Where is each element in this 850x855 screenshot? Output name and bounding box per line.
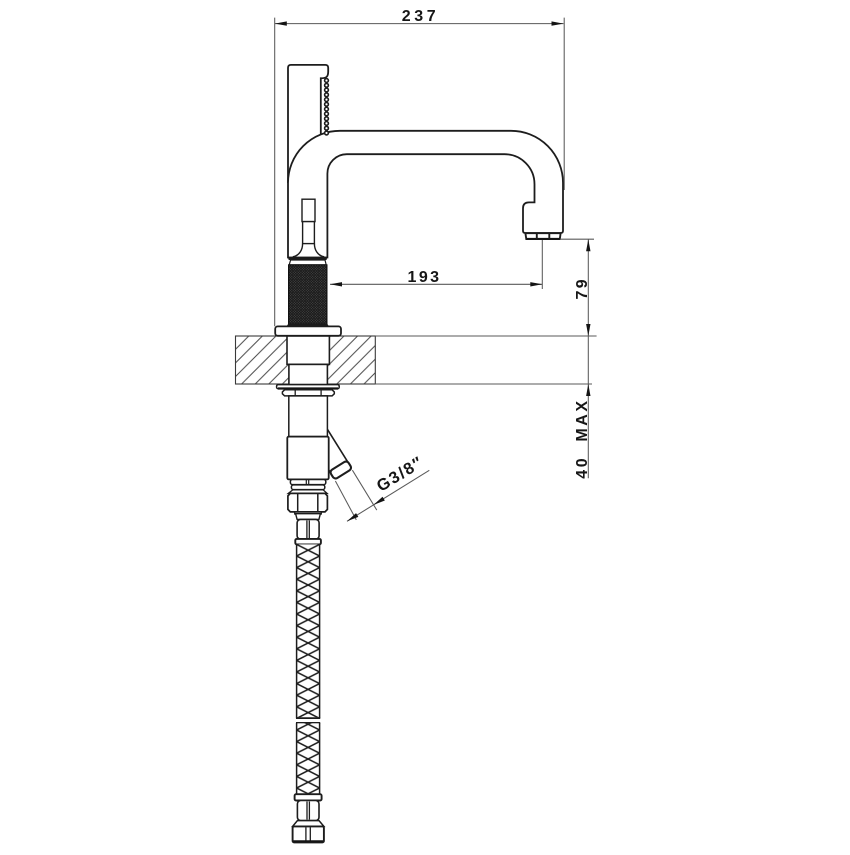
- svg-text:79: 79: [574, 277, 591, 300]
- svg-text:193: 193: [408, 269, 442, 286]
- svg-text:G3/8″: G3/8″: [374, 453, 427, 496]
- svg-text:40 MAX: 40 MAX: [574, 398, 591, 478]
- svg-text:237: 237: [402, 8, 440, 25]
